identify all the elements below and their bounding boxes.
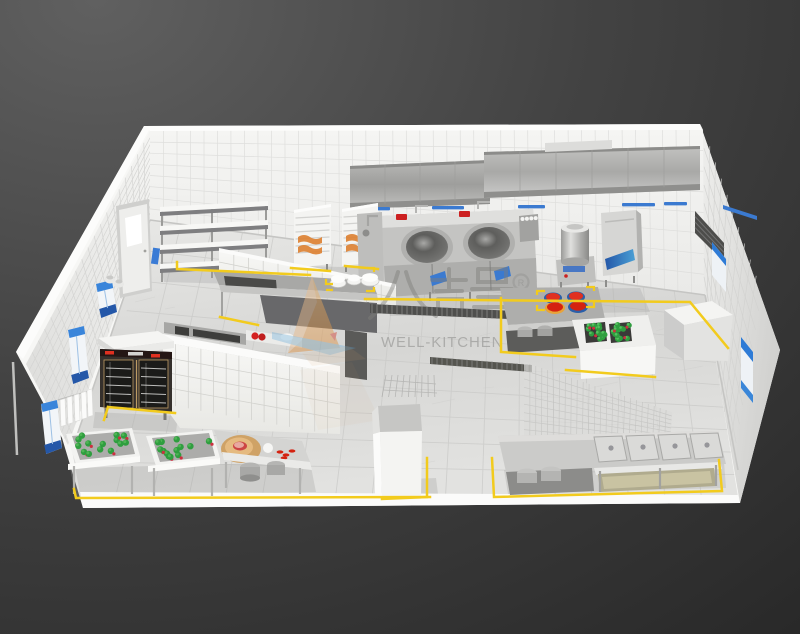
svg-text:R: R [518, 278, 525, 288]
svg-text:WELL-KITCHEN: WELL-KITCHEN [381, 334, 504, 351]
